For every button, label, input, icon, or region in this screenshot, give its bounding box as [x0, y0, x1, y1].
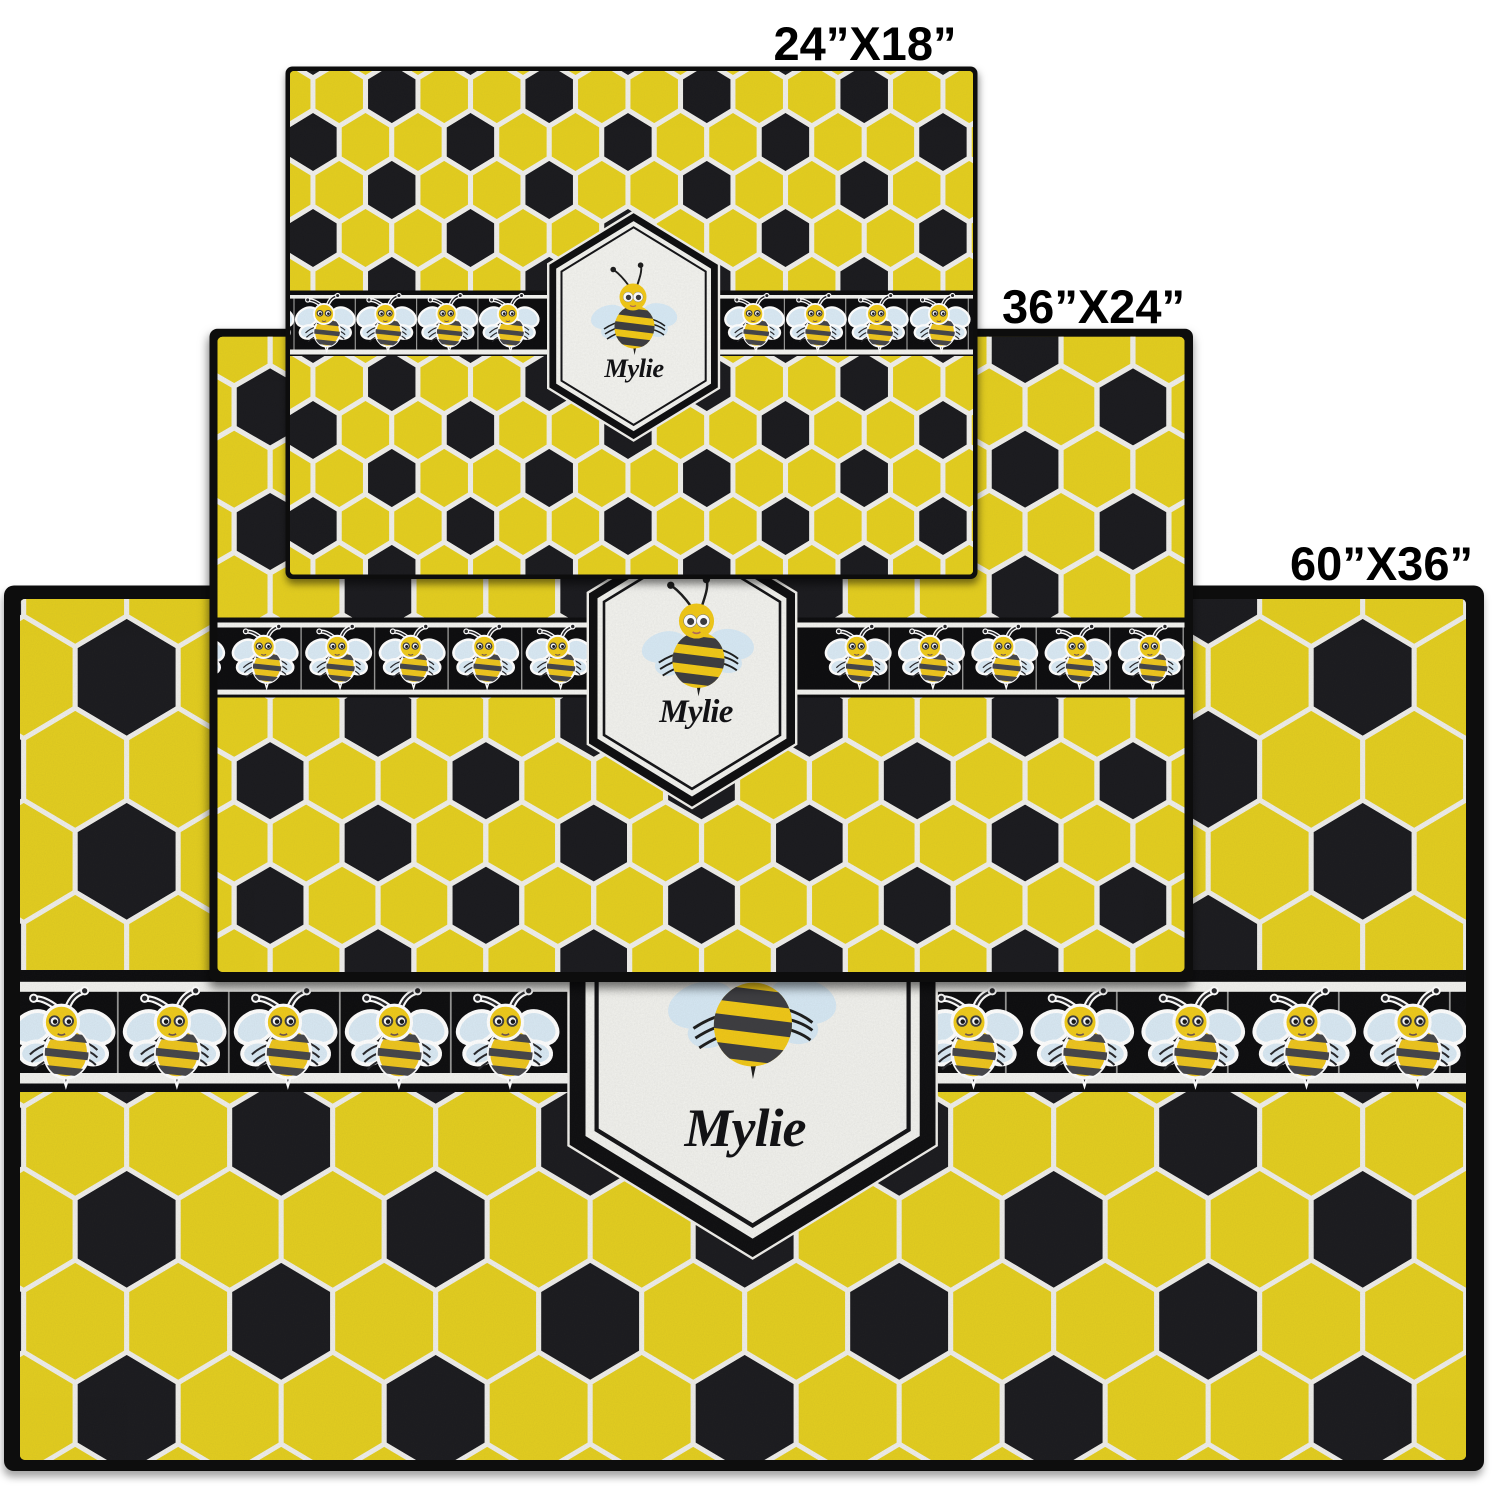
- svg-text:60”X36”: 60”X36”: [1290, 537, 1473, 590]
- svg-text:24”X18”: 24”X18”: [774, 17, 957, 70]
- svg-text:36”X24”: 36”X24”: [1002, 280, 1185, 333]
